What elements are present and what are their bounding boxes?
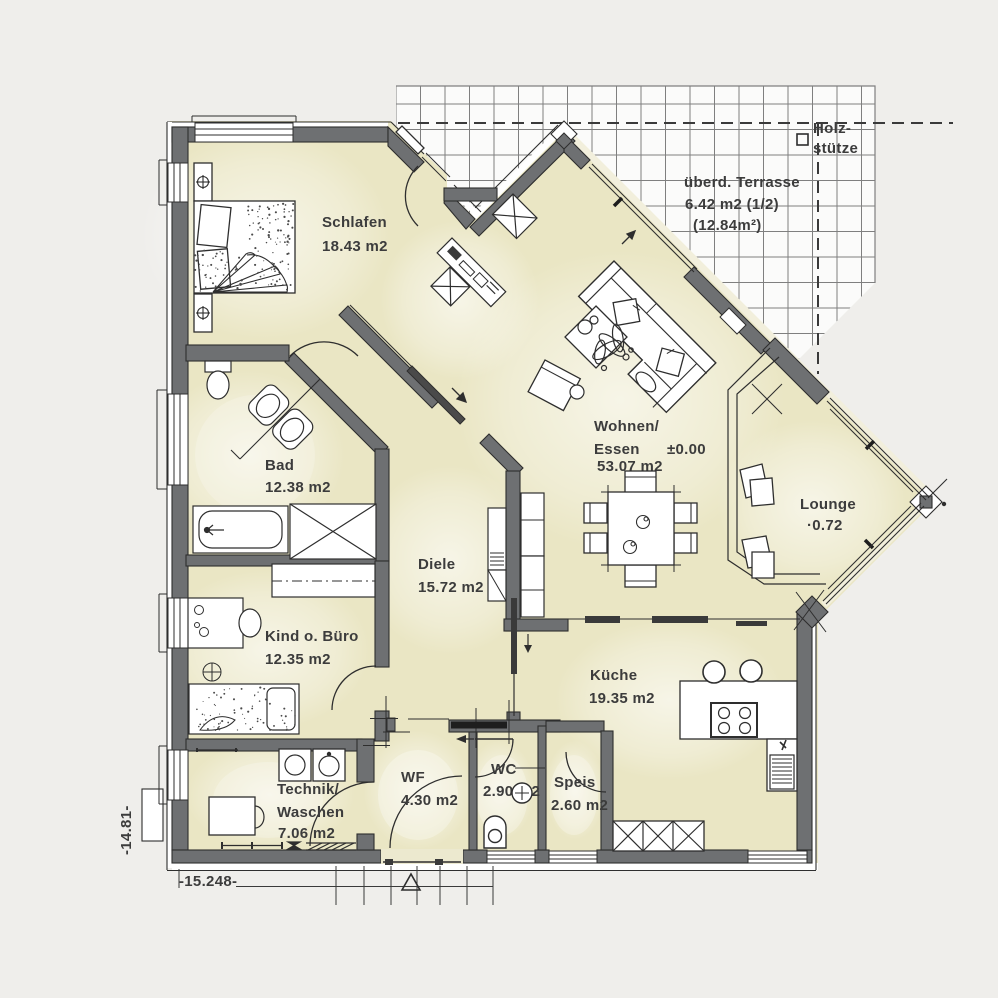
svg-text:·0.72: ·0.72 xyxy=(807,517,843,534)
svg-text:±0.00: ±0.00 xyxy=(667,441,706,458)
svg-text:2.60 m2: 2.60 m2 xyxy=(551,797,608,814)
svg-text:Bad: Bad xyxy=(265,457,294,474)
svg-text:12.38 m2: 12.38 m2 xyxy=(265,479,331,496)
svg-text:-15.248-: -15.248- xyxy=(179,873,237,890)
svg-text:(12.84m²): (12.84m²) xyxy=(693,217,762,234)
svg-text:Essen: Essen xyxy=(594,441,640,458)
svg-text:WC: WC xyxy=(491,761,517,778)
svg-text:Schlafen: Schlafen xyxy=(322,214,387,231)
svg-text:4.30 m2: 4.30 m2 xyxy=(401,792,458,809)
svg-text:Technik/: Technik/ xyxy=(277,781,340,798)
svg-text:stütze: stütze xyxy=(813,140,858,157)
svg-text:Wohnen/: Wohnen/ xyxy=(594,418,660,435)
svg-text:7.06 m2: 7.06 m2 xyxy=(278,825,335,842)
svg-text:Holz-: Holz- xyxy=(813,120,851,137)
svg-text:15.72 m2: 15.72 m2 xyxy=(418,579,484,596)
svg-text:Küche: Küche xyxy=(590,667,637,684)
svg-text:Diele: Diele xyxy=(418,556,455,573)
svg-text:überd. Terrasse: überd. Terrasse xyxy=(684,174,800,191)
svg-text:12.35 m2: 12.35 m2 xyxy=(265,651,331,668)
svg-text:Kind o. Büro: Kind o. Büro xyxy=(265,628,359,645)
svg-text:Speis: Speis xyxy=(554,774,596,791)
svg-text:-14.81-: -14.81- xyxy=(118,805,135,855)
svg-text:Waschen: Waschen xyxy=(277,804,344,821)
svg-text:Lounge: Lounge xyxy=(800,496,856,513)
svg-text:6.42 m2 (1/2): 6.42 m2 (1/2) xyxy=(685,196,779,213)
svg-text:WF: WF xyxy=(401,769,425,786)
svg-text:18.43 m2: 18.43 m2 xyxy=(322,238,388,255)
svg-text:19.35 m2: 19.35 m2 xyxy=(589,690,655,707)
